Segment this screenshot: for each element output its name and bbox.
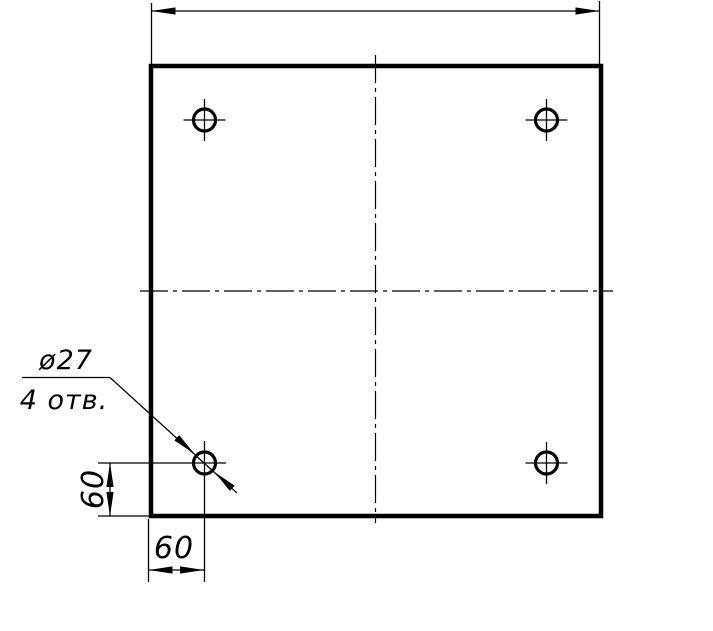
hole-bottom-right xyxy=(526,442,568,484)
hole-diameter-label: ø27 xyxy=(38,345,93,376)
dimension-overall-width xyxy=(152,1,600,64)
dimension-hole-offset-horizontal: 60 xyxy=(149,519,205,582)
dimension-hole-offset-vertical: 60 xyxy=(76,463,184,516)
dimension-value: 60 xyxy=(154,531,194,566)
hole-count-label: 4 отв. xyxy=(20,385,109,416)
hole-top-right xyxy=(526,99,568,141)
drawing-canvas: 60 60 ø27 4 отв. xyxy=(0,0,713,631)
dimension-value: 60 xyxy=(76,469,111,509)
hole-top-left xyxy=(184,99,226,141)
technical-drawing: 60 60 ø27 4 отв. xyxy=(0,0,713,631)
